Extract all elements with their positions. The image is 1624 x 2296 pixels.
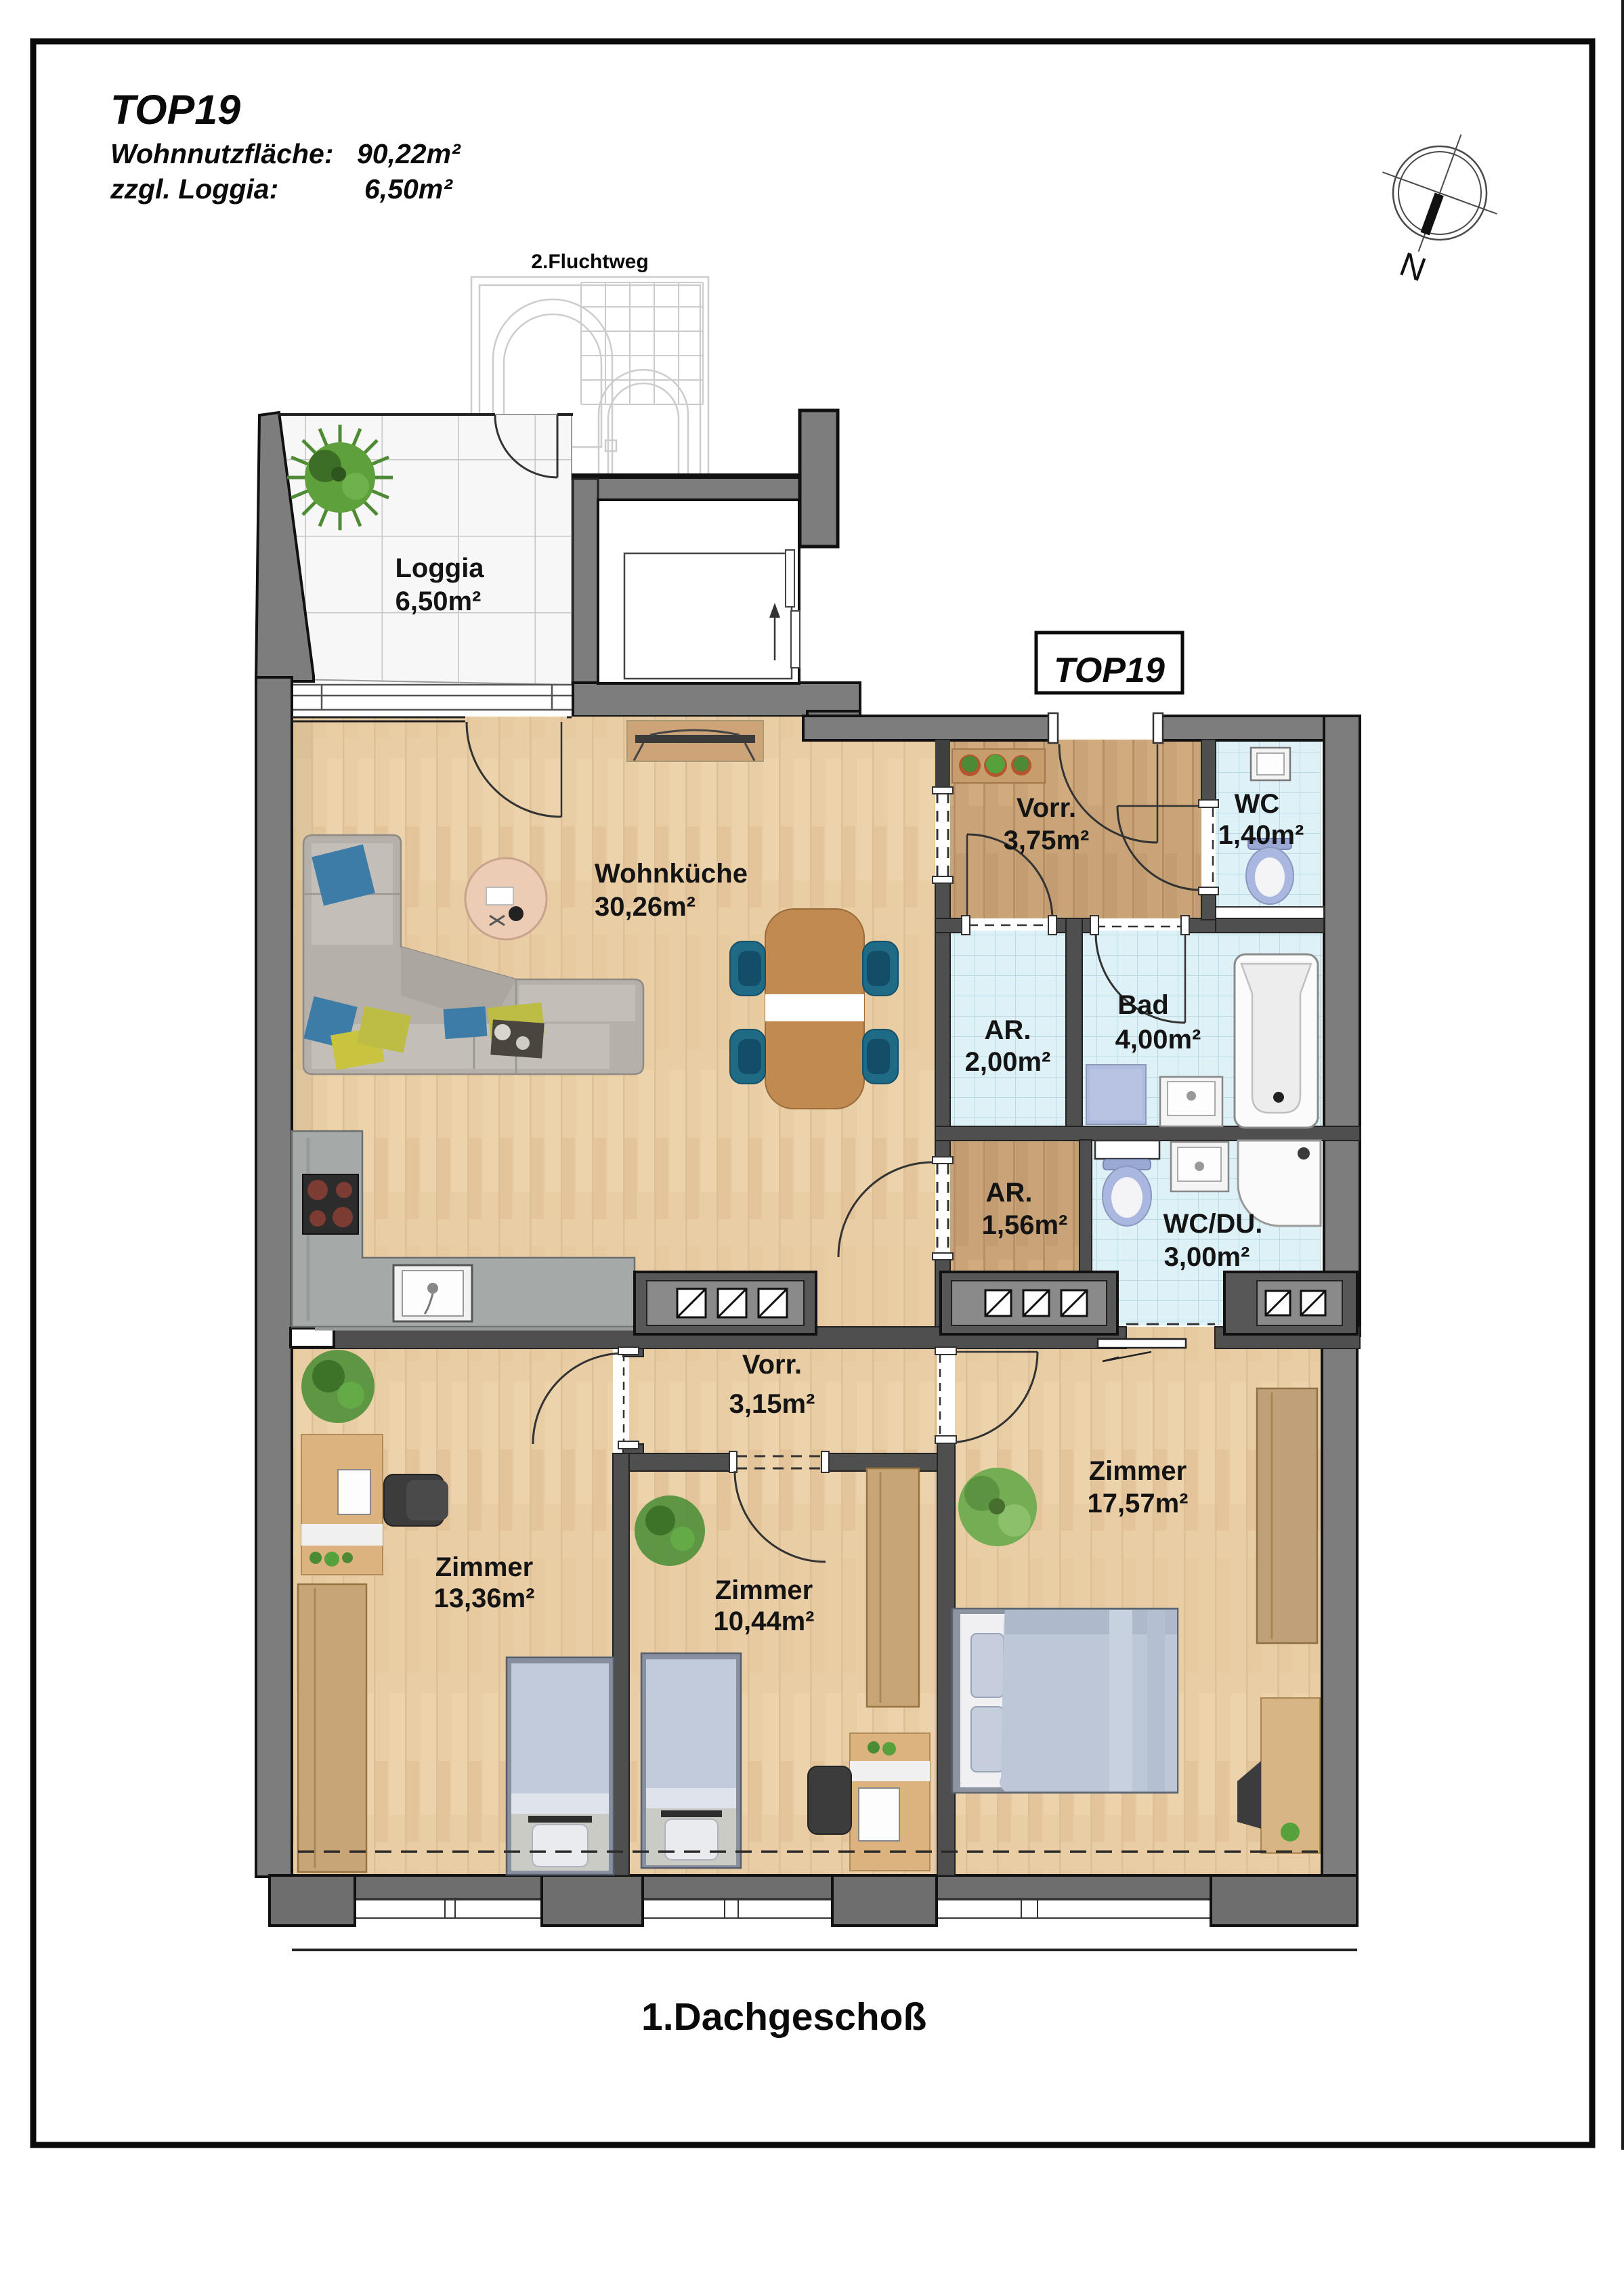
- svg-text:17,57m²: 17,57m²: [1088, 1489, 1189, 1518]
- svg-text:Wohnküche: Wohnküche: [595, 859, 748, 889]
- svg-text:Vorr.: Vorr.: [742, 1350, 802, 1380]
- svg-text:1,56m²: 1,56m²: [982, 1210, 1068, 1240]
- svg-text:1.Dachgeschoß: 1.Dachgeschoß: [641, 1995, 926, 2039]
- svg-text:3,15m²: 3,15m²: [729, 1389, 815, 1419]
- svg-text:Wohnnutzfläche:: Wohnnutzfläche:: [110, 138, 333, 169]
- svg-text:Vorr.: Vorr.: [1017, 793, 1076, 823]
- svg-text:WC: WC: [1235, 789, 1280, 819]
- svg-text:Zimmer: Zimmer: [1089, 1456, 1187, 1486]
- svg-text:90,22m²: 90,22m²: [357, 138, 461, 169]
- svg-text:AR.: AR.: [986, 1178, 1033, 1208]
- svg-text:3,75m²: 3,75m²: [1004, 826, 1090, 855]
- svg-text:Zimmer: Zimmer: [715, 1575, 813, 1605]
- svg-text:13,36m²: 13,36m²: [434, 1583, 535, 1613]
- svg-text:3,00m²: 3,00m²: [1164, 1242, 1250, 1272]
- svg-text:AR.: AR.: [985, 1015, 1031, 1045]
- svg-text:6,50m²: 6,50m²: [364, 173, 453, 205]
- svg-text:4,00m²: 4,00m²: [1115, 1025, 1201, 1055]
- svg-text:2,00m²: 2,00m²: [965, 1047, 1051, 1077]
- svg-text:30,26m²: 30,26m²: [595, 892, 696, 922]
- svg-text:TOP19: TOP19: [1054, 651, 1165, 690]
- svg-text:1,40m²: 1,40m²: [1218, 820, 1304, 850]
- svg-text:Zimmer: Zimmer: [435, 1552, 534, 1582]
- svg-text:6,50m²: 6,50m²: [396, 587, 482, 616]
- svg-text:TOP19: TOP19: [110, 87, 240, 133]
- svg-text:WC/DU.: WC/DU.: [1163, 1209, 1263, 1239]
- svg-text:10,44m²: 10,44m²: [714, 1607, 815, 1636]
- svg-text:2.Fluchtweg: 2.Fluchtweg: [531, 251, 648, 273]
- svg-text:Bad: Bad: [1117, 990, 1169, 1020]
- svg-text:zzgl. Loggia:: zzgl. Loggia:: [110, 173, 278, 205]
- svg-text:Loggia: Loggia: [395, 553, 484, 583]
